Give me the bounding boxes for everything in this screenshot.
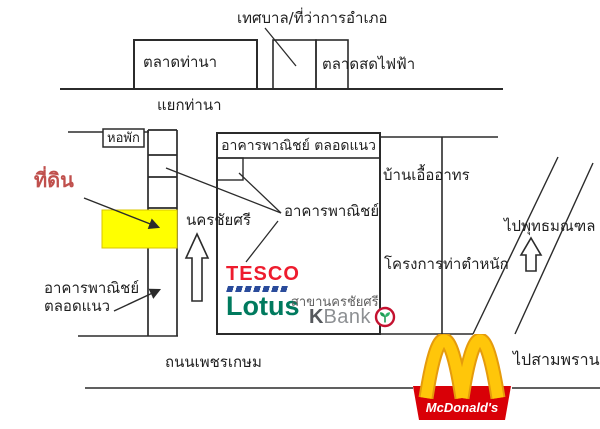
- dormitory-label: หอพัก: [107, 131, 140, 147]
- shophouse-all-along-line1: อาคารพาณิชย์: [44, 279, 139, 297]
- land-label: ที่ดิน: [34, 168, 74, 192]
- tesco-wordmark: TESCO: [226, 264, 300, 284]
- municipality-pointer-line: [265, 28, 296, 66]
- to-sampran-label: ไปสามพราน: [513, 350, 600, 369]
- lotus-wordmark: Lotus: [226, 293, 300, 320]
- mcdonalds-wordmark: McDonald's: [426, 400, 498, 415]
- junction-label: แยกท่านา: [157, 96, 222, 114]
- tesco-lotus-logo: TESCO Lotus: [226, 264, 300, 320]
- hand-drawn-location-map: เทศบาล/ที่ว่าการอำเภอ ตลาดท่านา ตลาดสดไฟ…: [0, 0, 600, 429]
- shophouse-all-along-line2: ตลอดแนว: [44, 297, 139, 315]
- branch-label: สาขานครชัยศรี: [291, 291, 379, 312]
- housing-project-label: บ้านเอื้ออาทร: [383, 166, 470, 184]
- shophouse-all-along-label: อาคารพาณิชย์ ตลอดแนว: [44, 279, 139, 315]
- market-thana-label: ตลาดท่านา: [143, 53, 217, 71]
- shophouse-row-label: อาคารพาณิชย์ ตลอดแนว: [217, 133, 380, 158]
- commercial-label: อาคารพาณิชย์: [284, 202, 379, 220]
- phetkasem-road-label: ถนนเพชรเกษม: [165, 353, 262, 371]
- mcdonalds-arches-icon: [410, 334, 514, 400]
- diagonal-road-left-line: [473, 157, 558, 334]
- north-up-arrow-icon: [186, 234, 208, 301]
- phutthamonthon-up-arrow-icon: [521, 238, 541, 271]
- road-north-label: นครชัยศรี: [186, 211, 251, 229]
- to-phutthamonthon-label: ไปพุทธมณฑล: [504, 217, 595, 235]
- corner-commercial-box: [217, 158, 243, 180]
- land-plot-highlight: [102, 210, 177, 248]
- lotus-dashes-icon: [226, 286, 290, 292]
- mcdonalds-logo: McDonald's: [410, 334, 514, 424]
- municipality-label: เทศบาล/ที่ว่าการอำเภอ: [237, 9, 387, 27]
- tha-tamnak-project-label: โครงการท่าตำหนัก: [384, 255, 509, 273]
- fresh-market-label: ตลาดสดไฟฟ้า: [322, 55, 415, 73]
